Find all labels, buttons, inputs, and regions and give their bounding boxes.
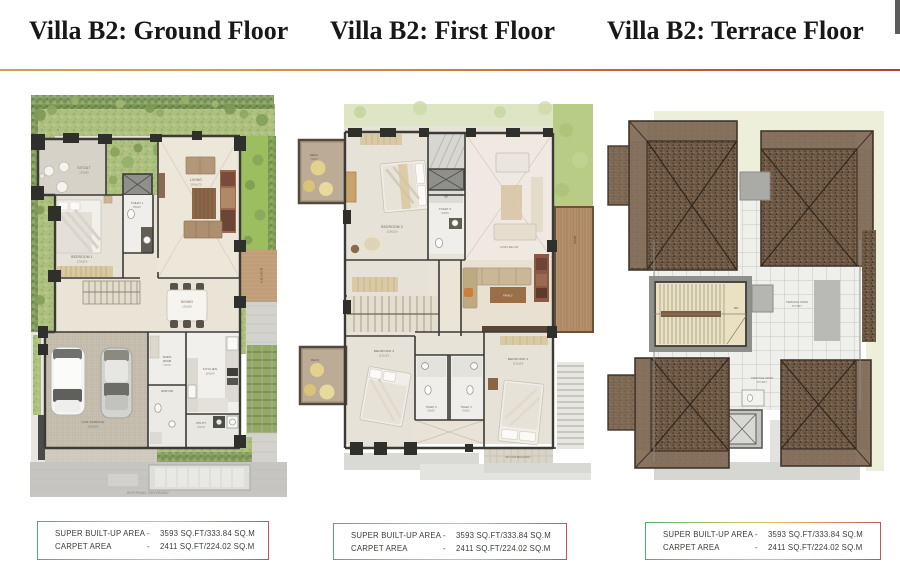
svg-text:BEDROOM 3: BEDROOM 3: [374, 349, 394, 353]
svg-text:MAIDS: MAIDS: [163, 355, 172, 359]
svg-text:DN: DN: [734, 306, 738, 310]
svg-text:CAR PARKING: CAR PARKING: [82, 420, 105, 424]
svg-text:DECK: DECK: [310, 153, 318, 157]
svg-text:TO SKY: TO SKY: [792, 304, 802, 308]
svg-text:DINING: DINING: [181, 300, 194, 304]
svg-text:TOILET 1: TOILET 1: [131, 201, 144, 205]
svg-text:18'0x18'0: 18'0x18'0: [88, 426, 99, 429]
svg-text:7'0x6'0: 7'0x6'0: [310, 158, 318, 161]
svg-text:11'0x12'0: 11'0x12'0: [379, 355, 390, 358]
svg-text:ROOM: ROOM: [163, 359, 172, 363]
svg-text:12'0x8'0: 12'0x8'0: [182, 305, 192, 309]
svg-text:FAMILY: FAMILY: [503, 294, 513, 298]
svg-text:TOILET 3: TOILET 3: [425, 405, 437, 409]
svg-text:ENTRY: ENTRY: [259, 268, 264, 284]
svg-text:INTERNAL DRIVEWAY: INTERNAL DRIVEWAY: [127, 491, 170, 495]
svg-text:KITCHEN: KITCHEN: [203, 367, 218, 371]
svg-text:BEDROOM 1: BEDROOM 1: [71, 255, 93, 259]
svg-text:SITOUT: SITOUT: [77, 166, 90, 170]
svg-text:LIVING: LIVING: [190, 178, 202, 182]
svg-text:12'0x11'6: 12'0x11'6: [77, 260, 88, 264]
svg-text:DECK: DECK: [573, 236, 577, 244]
svg-text:BEDROOM 2: BEDROOM 2: [381, 225, 403, 229]
svg-text:LIVING BELOW: LIVING BELOW: [500, 245, 519, 249]
svg-text:SIT OUT BALCONY: SIT OUT BALCONY: [505, 455, 530, 459]
svg-text:8'6x5'0: 8'6x5'0: [133, 206, 141, 209]
svg-text:8'0x5'0: 8'0x5'0: [441, 212, 449, 215]
svg-text:11'0x13'6: 11'0x13'6: [513, 363, 524, 366]
svg-text:5'0x7'0: 5'0x7'0: [197, 426, 205, 429]
svg-text:10'6x9'6: 10'6x9'6: [205, 373, 215, 376]
svg-text:TOILET 2: TOILET 2: [439, 207, 451, 211]
svg-text:7'0x7'0: 7'0x7'0: [163, 364, 171, 367]
svg-text:BEDROOM 4: BEDROOM 4: [508, 357, 528, 361]
svg-text:5'0x8'0: 5'0x8'0: [462, 411, 470, 413]
svg-text:5'0x8'0: 5'0x8'0: [427, 411, 435, 413]
svg-text:13'6x8'0: 13'6x8'0: [79, 171, 89, 175]
svg-text:TO SKY: TO SKY: [757, 380, 767, 384]
svg-text:DECK: DECK: [311, 358, 319, 362]
svg-text:TOILET 4: TOILET 4: [460, 405, 472, 409]
svg-text:UTILITY: UTILITY: [196, 421, 207, 425]
svg-text:16'0x12'0: 16'0x12'0: [191, 183, 202, 187]
svg-text:12'0x12'0: 12'0x12'0: [387, 230, 398, 234]
svg-text:WASH RM: WASH RM: [161, 390, 173, 393]
